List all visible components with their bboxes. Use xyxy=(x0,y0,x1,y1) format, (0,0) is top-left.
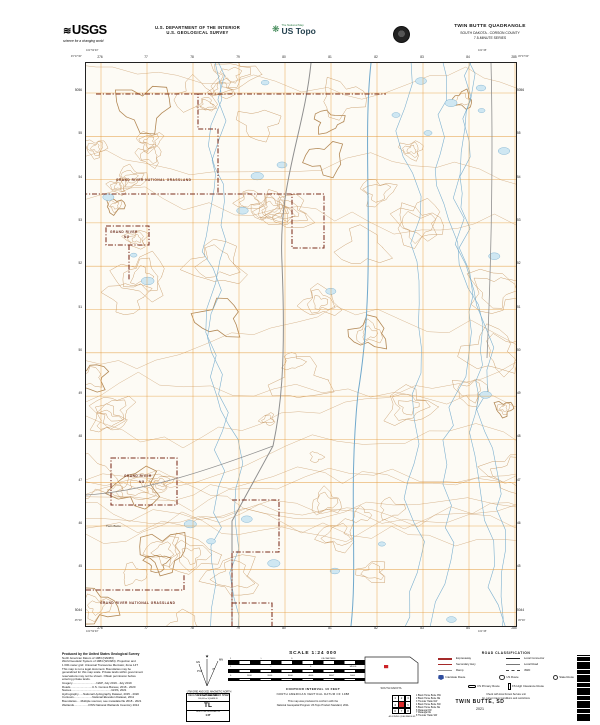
adjoining-grid-cell: 8 xyxy=(405,708,412,715)
interstate-shield-icon xyxy=(438,675,444,680)
grid-label-right: 47 xyxy=(517,479,521,482)
ustopo-logo: ❋ The National Map US Topo xyxy=(272,24,316,36)
grid-label-top: 83 xyxy=(420,56,424,59)
fs-primary-icon xyxy=(468,685,476,689)
scale-number: 2000 xyxy=(267,675,272,678)
adjoining-caption: ADJOINING QUADRANGLES xyxy=(384,716,420,718)
map-svg: GRAND RIVER NATIONAL GRASSLANDGRAND RIVE… xyxy=(86,63,516,626)
grid-label-top: 77 xyxy=(144,56,148,59)
series: 7.5-MINUTE SERIES xyxy=(428,36,552,40)
state-county: SOUTH DAKOTA - CORSON COUNTY xyxy=(428,31,552,35)
map-label: GRAND RIVER NATIONAL GRASSLAND xyxy=(116,178,192,182)
expressway-sample xyxy=(438,658,452,660)
legend-title: ROAD CLASSIFICATION xyxy=(438,651,574,655)
stateroute-shield-icon xyxy=(553,675,558,680)
sheet-name: TWIN BUTTE, SD xyxy=(441,699,519,705)
usgs-tagline: science for a changing world xyxy=(63,39,115,43)
legend-label: Interstate Route xyxy=(445,676,465,679)
map-label: NG xyxy=(124,235,130,239)
gn-angle: 0°16' xyxy=(197,671,203,673)
scale-number: 1000 xyxy=(247,675,252,678)
connector-sample xyxy=(506,658,520,659)
local-sample xyxy=(506,664,520,665)
vertical-datum: NORTH AMERICAN VERTICAL DATUM OF 1988 xyxy=(228,692,398,696)
grid-label-left: 53 xyxy=(58,219,82,222)
grid-label-top: 79 xyxy=(236,56,240,59)
usng-square-id: TL xyxy=(187,702,229,710)
map-label: NG xyxy=(139,480,145,484)
legend-label: FS Primary Route xyxy=(477,685,499,688)
fs-primary-item: FS Primary Route xyxy=(468,685,500,689)
corner-coord-tl-lon: 101°52'30" xyxy=(86,50,99,53)
grid-label-left: 5044 xyxy=(58,609,82,612)
legend-label: State Route xyxy=(559,676,574,679)
sheet-name-block: TWIN BUTTE, SD 2021 xyxy=(441,699,519,711)
grid-label-right: 45 xyxy=(517,565,521,568)
map-area: GRAND RIVER NATIONAL GRASSLANDGRAND RIVE… xyxy=(85,62,517,627)
grid-label-bottom: 77 xyxy=(144,627,148,630)
corner-coord-tl-lat: 45°37'30" xyxy=(38,56,82,59)
grid-label-right: 52 xyxy=(517,262,521,265)
grid-label-left: 55 xyxy=(58,132,82,135)
grid-label-right: 55 xyxy=(517,132,521,135)
grid-label-top: 82 xyxy=(374,56,378,59)
department-line2: U.S. GEOLOGICAL SURVEY xyxy=(115,30,280,35)
scale-number: 0 xyxy=(230,675,231,678)
grid-label-left: 45 xyxy=(58,565,82,568)
grid-label-right: 49 xyxy=(517,392,521,395)
conform-line2: National Geospatial Program US Topo Prod… xyxy=(228,704,398,707)
fs-high-item: FS High Clearance Route xyxy=(508,683,544,690)
quad-location-marker xyxy=(384,665,388,668)
legend-label: US Route xyxy=(506,676,518,679)
legend-shields: Interstate RouteUS RouteState Route xyxy=(438,675,574,680)
grid-label-top: 81 xyxy=(328,56,332,59)
usroute-shield-icon xyxy=(499,675,505,680)
grid-label-right: 53 xyxy=(517,219,521,222)
scale-number: ½ xyxy=(270,666,272,669)
corner-coord-br-lat: 45°30' xyxy=(518,620,525,623)
map-label: GRAND RIVER xyxy=(110,230,138,234)
corner-coord-tr-lon: 101°45' xyxy=(478,50,487,53)
usgs-logo-text: ≋USGS xyxy=(63,23,115,38)
legend-rows: ExpresswayLocal ConnectorSecondary HwyLo… xyxy=(438,657,574,671)
usgs-topo-sheet: ≋USGS science for a changing world U.S. … xyxy=(0,0,600,725)
grid-label-left: 51 xyxy=(58,306,82,309)
fs-high-icon xyxy=(508,683,511,690)
quadrangle-title-block: TWIN BUTTE QUADRANGLE SOUTH DAKOTA - COR… xyxy=(428,24,552,40)
barcode xyxy=(577,655,590,721)
4wd-sample xyxy=(506,670,520,671)
state-locator: SOUTH DAKOTA xyxy=(364,656,420,691)
grid-label-bottom: 78 xyxy=(190,627,194,630)
stateroute-item: State Route xyxy=(553,675,574,680)
scale-number: ½ xyxy=(260,658,262,661)
grid-label-right: 46 xyxy=(517,522,521,525)
grid-label-right: 50 xyxy=(517,349,521,352)
corner-coord-br-lon: 101°45' xyxy=(478,631,487,634)
legend-label: Expressway xyxy=(456,657,504,660)
legend-fs-routes: FS Primary RouteFS High Clearance Route xyxy=(438,683,574,690)
grid-label-top: 80 xyxy=(282,56,286,59)
legend-label: Secondary Hwy xyxy=(456,663,504,666)
corner-coord-bl-lon: 101°52'30" xyxy=(86,631,99,634)
interstate-item: Interstate Route xyxy=(438,675,465,680)
scale-number: 1 xyxy=(230,666,231,669)
grid-label-left: 52 xyxy=(58,262,82,265)
usng-box: U.S. NATIONAL GRID 100,000-m SQUARE ID T… xyxy=(186,693,230,722)
legend-label: FS High Clearance Route xyxy=(512,685,544,688)
interior-seal-icon xyxy=(393,26,410,43)
sheet-year: 2021 xyxy=(441,707,519,711)
legend-label: Local Road xyxy=(524,663,574,666)
grid-label-top: 276 xyxy=(97,56,102,59)
grid-label-top: 285 xyxy=(511,56,516,59)
production-credits: Produced by the United States Geological… xyxy=(62,653,182,707)
department-heading: U.S. DEPARTMENT OF THE INTERIOR U.S. GEO… xyxy=(115,25,280,36)
grid-label-bottom: 82 xyxy=(374,627,378,630)
grid-label-top: 78 xyxy=(190,56,194,59)
map-label: GRAND RIVER NATIONAL GRASSLAND xyxy=(100,601,176,605)
grid-label-bottom: 83 xyxy=(420,627,424,630)
ustopo-name: US Topo xyxy=(282,27,316,36)
usroute-item: US Route xyxy=(499,675,518,680)
usgs-wave-icon: ≋ xyxy=(63,26,71,37)
grid-label-right: 54 xyxy=(517,176,521,179)
grid-label-left: 50 xyxy=(58,349,82,352)
legend-label: Local Connector xyxy=(524,657,574,660)
grid-label-bottom: 80 xyxy=(282,627,286,630)
credit-line: Wetlands..................FWS National W… xyxy=(62,704,182,708)
usgs-logo: ≋USGS science for a changing world xyxy=(63,23,115,43)
corner-coord-bl-lat: 45°30' xyxy=(38,620,82,623)
grid-label-bottom: 285 xyxy=(511,627,516,630)
scale-number: 4000 xyxy=(308,675,313,678)
grid-label-bottom: 79 xyxy=(236,627,240,630)
adjoining-quad-grid: 12345678 xyxy=(392,695,411,714)
map-label: Twin Butte xyxy=(106,524,121,528)
legend-label: 4WD xyxy=(524,669,574,672)
secondary-sample xyxy=(438,664,452,665)
grid-label-right: 5044 xyxy=(517,609,524,612)
scale-number: 3000 xyxy=(288,675,293,678)
scale-number: FEET xyxy=(329,675,335,678)
grid-label-left: 49 xyxy=(58,392,82,395)
mn-angle: 8° xyxy=(213,669,215,671)
conform-line1: This map was produced to conform with th… xyxy=(228,700,398,703)
grid-label-left: 54 xyxy=(58,176,82,179)
legend-label: Ramp xyxy=(456,669,504,672)
grid-label-right: 48 xyxy=(517,435,521,438)
scale-number: 0 xyxy=(310,666,311,669)
grid-label-left: 48 xyxy=(58,435,82,438)
ramp-sample xyxy=(438,670,452,671)
mn-label: MN xyxy=(219,658,223,662)
scale-number: 1 xyxy=(230,658,231,661)
scale-number: 5000 xyxy=(350,675,355,678)
gn-label: GN xyxy=(196,660,200,664)
grid-label-left: 5056 xyxy=(58,89,82,92)
road-classification-legend: ROAD CLASSIFICATION ExpresswayLocal Conn… xyxy=(438,651,574,700)
grid-label-right: 51 xyxy=(517,306,521,309)
grid-label-top: 84 xyxy=(466,56,470,59)
quadrangle-name: TWIN BUTTE QUADRANGLE xyxy=(428,24,552,29)
grid-label-left: 47 xyxy=(58,479,82,482)
ustopo-flower-icon: ❋ xyxy=(272,25,280,34)
grid-label-left: 46 xyxy=(58,522,82,525)
adjoining-quad-name: 8 Thunder Hawk SW xyxy=(416,715,456,718)
state-name: SOUTH DAKOTA xyxy=(380,686,401,690)
grid-label-right: 5056 xyxy=(517,89,524,92)
scale-number: MILES xyxy=(350,666,357,669)
scale-number: KILOMETERS xyxy=(321,658,335,661)
grid-label-bottom: 81 xyxy=(328,627,332,630)
corner-coord-tr-lat: 45°37'30" xyxy=(518,56,529,59)
grid-label-bottom: 84 xyxy=(466,627,470,630)
map-label: GRAND RIVER xyxy=(124,474,152,478)
true-north-star-icon: ★ xyxy=(205,654,209,659)
usng-zone: 14T xyxy=(187,714,229,718)
scale-number: 0 xyxy=(291,658,292,661)
